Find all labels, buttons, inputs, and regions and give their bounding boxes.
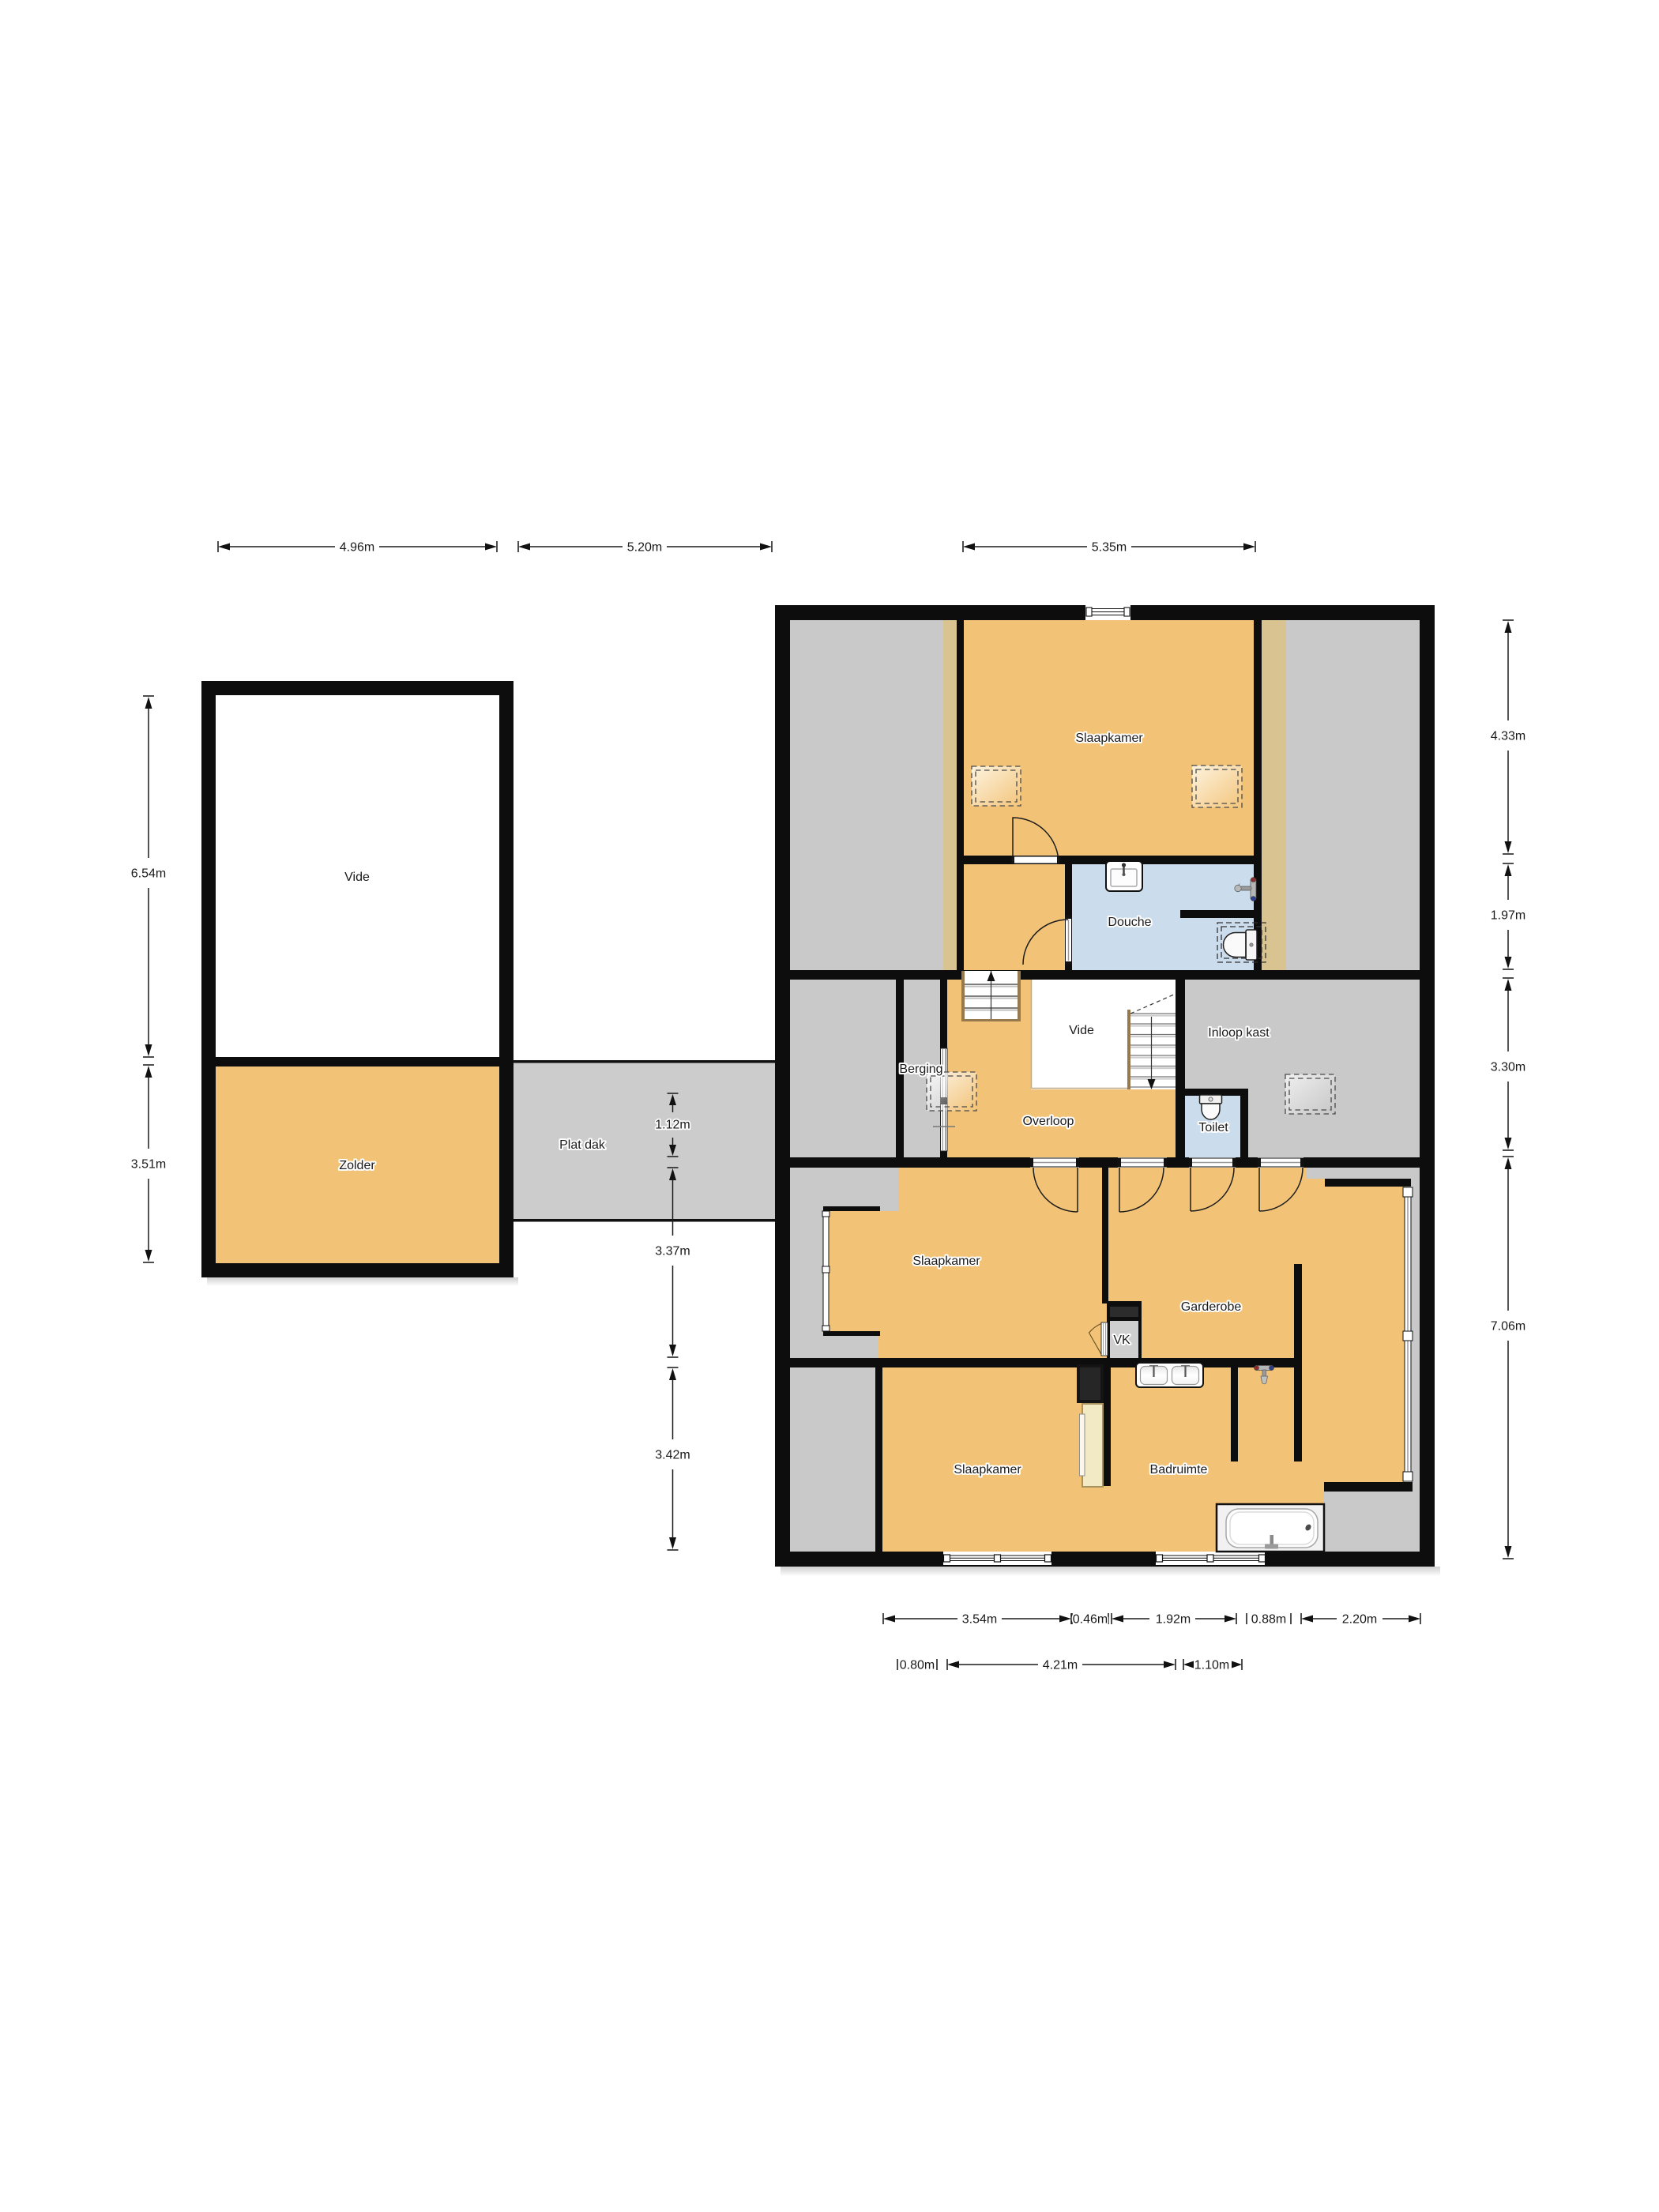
svg-text:0.88m: 0.88m — [1251, 1613, 1286, 1627]
svg-text:Plat dak: Plat dak — [559, 1138, 606, 1152]
svg-text:Badruimte: Badruimte — [1150, 1463, 1208, 1477]
svg-text:4.96m: 4.96m — [340, 541, 374, 555]
svg-text:1.92m: 1.92m — [1156, 1613, 1191, 1627]
svg-text:7.06m: 7.06m — [1491, 1320, 1525, 1334]
svg-text:4.21m: 4.21m — [1043, 1659, 1078, 1672]
svg-text:Vide: Vide — [344, 871, 370, 884]
svg-text:3.51m: 3.51m — [131, 1158, 166, 1172]
svg-text:5.20m: 5.20m — [627, 541, 662, 555]
svg-text:1.97m: 1.97m — [1491, 909, 1525, 923]
svg-text:Overloop: Overloop — [1023, 1115, 1074, 1128]
svg-text:Slaapkamer: Slaapkamer — [954, 1463, 1021, 1477]
svg-text:2.20m: 2.20m — [1342, 1613, 1377, 1627]
svg-text:3.54m: 3.54m — [962, 1613, 997, 1627]
svg-text:6.54m: 6.54m — [131, 867, 166, 881]
svg-text:5.35m: 5.35m — [1092, 541, 1127, 555]
svg-text:Slaapkamer: Slaapkamer — [912, 1255, 980, 1268]
svg-text:Zolder: Zolder — [339, 1159, 375, 1172]
svg-text:Toilet: Toilet — [1198, 1121, 1228, 1134]
svg-text:Douche: Douche — [1108, 916, 1151, 929]
svg-text:1.12m: 1.12m — [655, 1119, 690, 1132]
svg-text:3.42m: 3.42m — [655, 1449, 690, 1462]
svg-text:Inloop kast: Inloop kast — [1208, 1026, 1270, 1040]
svg-text:0.80m: 0.80m — [900, 1659, 935, 1672]
svg-text:0.46m: 0.46m — [1073, 1613, 1108, 1627]
svg-text:3.37m: 3.37m — [655, 1245, 690, 1258]
svg-text:VK: VK — [1113, 1334, 1130, 1347]
svg-text:1.10m: 1.10m — [1194, 1659, 1229, 1672]
svg-text:Garderobe: Garderobe — [1181, 1300, 1242, 1314]
svg-text:Vide: Vide — [1069, 1024, 1094, 1037]
svg-text:3.30m: 3.30m — [1491, 1061, 1525, 1074]
svg-text:4.33m: 4.33m — [1491, 730, 1525, 743]
svg-text:Berging: Berging — [899, 1063, 942, 1076]
svg-text:Slaapkamer: Slaapkamer — [1075, 732, 1143, 745]
